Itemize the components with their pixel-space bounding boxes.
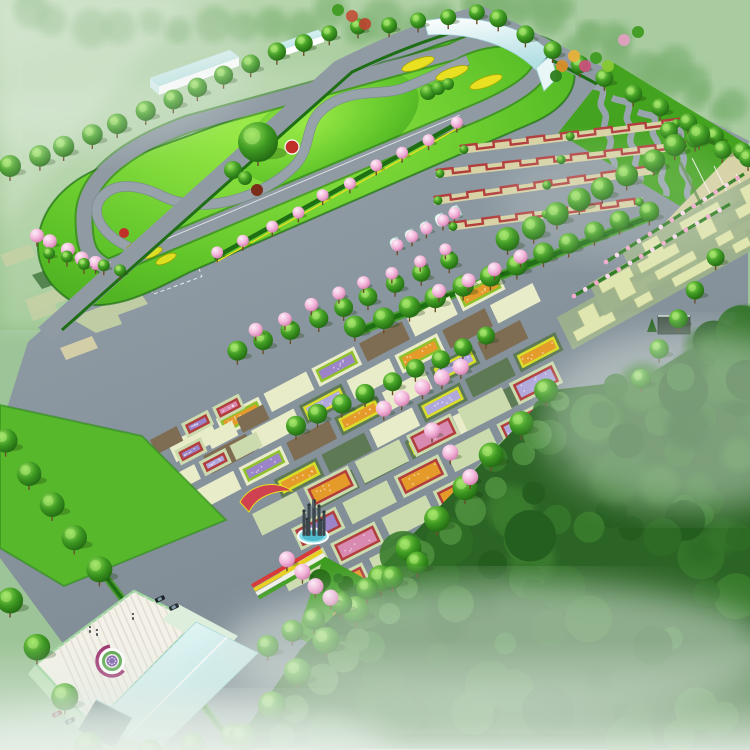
canopy-highlight — [270, 45, 278, 53]
site-plan-rendering — [0, 0, 750, 750]
forest-canopy-blob — [618, 516, 643, 541]
canopy-highlight — [337, 301, 345, 309]
tree-canopy — [406, 551, 428, 573]
canopy-highlight — [627, 87, 635, 95]
tree-canopy — [509, 411, 533, 435]
tree-canopy — [595, 69, 613, 87]
tree-canopy — [420, 222, 432, 234]
tree-canopy — [479, 442, 504, 467]
canopy-highlight — [409, 362, 417, 370]
sculpture-figure-head — [320, 519, 323, 522]
tree-canopy — [396, 147, 408, 159]
tree-canopy — [454, 338, 472, 356]
sculpture-figure — [306, 520, 309, 536]
tree-canopy — [399, 296, 421, 318]
tree-canopy — [266, 221, 278, 233]
ornamental-shrub — [602, 60, 614, 72]
canopy-highlight — [434, 353, 442, 361]
pedestrian — [96, 629, 98, 636]
canopy-highlight — [1, 591, 12, 602]
bottom-fog — [0, 640, 750, 750]
tree-canopy — [669, 309, 688, 328]
canopy-highlight — [20, 465, 30, 475]
zigzag-end-shrub — [435, 169, 444, 178]
sculpture-figure-head — [302, 509, 305, 512]
pedestrian — [89, 626, 91, 633]
canopy-highlight — [310, 407, 318, 415]
canopy-highlight — [116, 266, 121, 271]
ornamental-shrub — [359, 18, 371, 30]
canopy-highlight — [672, 312, 680, 320]
canopy-highlight — [709, 251, 717, 259]
infield-shrub — [238, 171, 252, 185]
tree-canopy — [355, 384, 374, 403]
tree-canopy — [30, 229, 44, 243]
tree-canopy — [713, 141, 731, 159]
tree-canopy — [78, 258, 90, 270]
tree-canopy — [307, 578, 323, 594]
tree-canopy — [17, 462, 42, 487]
canopy-highlight — [716, 143, 724, 151]
tree-canopy — [434, 369, 450, 385]
garden-shrub — [333, 573, 343, 583]
ornamental-shrub — [550, 70, 562, 82]
tree-canopy — [43, 234, 57, 248]
tree-canopy — [294, 564, 310, 580]
canopy-highlight — [688, 284, 696, 292]
forest-edge-crown — [455, 495, 486, 526]
tree-canopy — [317, 189, 329, 201]
tree-canopy — [61, 525, 87, 551]
light-forest-blob — [577, 22, 598, 43]
zigzag-end-shrub — [459, 145, 468, 154]
tree-canopy — [305, 298, 318, 311]
hedge-blossom — [572, 294, 577, 299]
tree-canopy — [544, 41, 562, 59]
tree-canopy — [451, 117, 463, 129]
tree-canopy — [381, 17, 397, 33]
tree-canopy — [308, 404, 328, 424]
tree-canopy — [334, 298, 353, 317]
light-forest-blob — [716, 89, 748, 121]
far-tree-blob — [255, 7, 287, 39]
tree-canopy — [477, 327, 495, 345]
canopy-highlight — [99, 261, 104, 266]
infield-shrub — [442, 78, 454, 90]
canopy-highlight — [499, 230, 509, 240]
canopy-highlight — [492, 12, 500, 20]
tree-canopy — [292, 207, 304, 219]
tree-canopy — [489, 9, 507, 27]
canopy-highlight — [399, 539, 410, 550]
light-forest-blob — [693, 81, 712, 100]
tree-canopy — [344, 178, 356, 190]
canopy-highlight — [244, 128, 261, 145]
tree-canopy — [707, 248, 725, 266]
sculpture-figure — [320, 521, 323, 536]
tree-canopy — [437, 214, 449, 226]
tree-canopy — [295, 34, 313, 52]
tree-canopy — [286, 416, 306, 436]
forest-canopy-blob — [643, 518, 681, 556]
canopy-highlight — [65, 528, 76, 539]
tree-canopy — [344, 315, 366, 337]
canopy-highlight — [383, 19, 390, 26]
tree-canopy — [624, 85, 642, 103]
ornamental-shrub — [579, 60, 591, 72]
forest-edge-crown — [512, 443, 535, 466]
canopy-highlight — [312, 311, 320, 319]
canopy-highlight — [80, 260, 85, 265]
canopy-highlight — [546, 44, 554, 52]
sculpture-figure-head — [322, 510, 325, 513]
canopy-highlight — [428, 510, 439, 521]
mist-patch — [500, 140, 740, 260]
canopy-highlight — [667, 137, 676, 146]
canopy-highlight — [358, 387, 366, 395]
sculpture-figure — [303, 512, 306, 536]
sculpture-figure — [323, 513, 326, 536]
tree-canopy — [332, 394, 352, 414]
canopy-highlight — [297, 36, 305, 44]
canopy-highlight — [482, 446, 492, 456]
pedestrian-legs — [132, 617, 134, 620]
canopy-highlight — [662, 124, 670, 132]
tree-canopy — [376, 401, 392, 417]
canopy-highlight — [289, 419, 297, 427]
canopy-highlight — [371, 569, 382, 580]
canopy-highlight — [384, 569, 393, 578]
ornamental-shrub — [590, 52, 602, 64]
tree-canopy — [453, 359, 469, 375]
tree-canopy — [448, 207, 460, 219]
tree-canopy — [249, 323, 263, 337]
red-leaf-shrub — [251, 184, 263, 196]
tree-canopy — [423, 134, 435, 146]
ornamental-shrub — [346, 10, 358, 22]
canopy-highlight — [335, 397, 343, 405]
canopy-highlight — [361, 290, 369, 298]
canopy-highlight — [513, 414, 523, 424]
tree-canopy — [442, 444, 458, 460]
tree-canopy — [410, 13, 426, 29]
canopy-highlight — [63, 252, 68, 257]
tree-canopy — [357, 276, 370, 289]
canopy-highlight — [402, 299, 411, 308]
forest-canopy-blob — [478, 550, 507, 579]
tree-canopy — [688, 124, 710, 146]
tree-canopy — [424, 506, 449, 531]
sculpture-spire — [312, 500, 314, 508]
tree-canopy — [114, 264, 126, 276]
pedestrian-body — [89, 628, 91, 630]
canopy-highlight — [456, 341, 464, 349]
canopy-highlight — [442, 11, 449, 18]
pedestrian — [132, 613, 134, 620]
tree-canopy — [406, 359, 425, 378]
sculpture-figure-head — [317, 504, 320, 507]
canopy-highlight — [682, 116, 690, 124]
ornamental-shrub — [332, 4, 344, 16]
canopy-highlight — [519, 28, 527, 36]
tree-canopy — [394, 390, 410, 406]
tree-canopy — [440, 9, 456, 25]
tree-canopy — [391, 239, 403, 251]
canopy-highlight — [412, 15, 419, 22]
tree-canopy — [496, 227, 520, 251]
canopy-highlight — [45, 249, 50, 254]
tree-canopy — [61, 251, 73, 263]
hedge-blossom — [605, 274, 610, 279]
canopy-highlight — [598, 71, 606, 79]
light-forest-blob — [531, 0, 566, 35]
pedestrian-head — [132, 613, 134, 615]
tree-canopy — [43, 247, 55, 259]
tree-canopy — [383, 372, 402, 391]
canopy-highlight — [736, 145, 744, 153]
canopy-highlight — [654, 101, 662, 109]
tree-canopy — [370, 159, 382, 171]
red-flower-bed — [285, 140, 299, 154]
tree-canopy — [516, 25, 534, 43]
hedge-blossom — [583, 287, 588, 292]
canopy-highlight — [409, 555, 418, 564]
tree-canopy — [386, 267, 399, 280]
canopy-highlight — [537, 382, 547, 392]
tree-canopy — [238, 122, 278, 162]
tree-canopy — [321, 25, 337, 41]
tree-canopy — [469, 4, 485, 20]
tree-canopy — [461, 273, 475, 287]
tree-canopy — [431, 350, 450, 369]
tree-canopy — [268, 42, 286, 60]
ornamental-shrub — [632, 26, 644, 38]
tree-canopy — [86, 556, 112, 582]
tree-canopy — [414, 255, 426, 267]
canopy-highlight — [347, 319, 356, 328]
canopy-highlight — [480, 329, 488, 337]
canopy-highlight — [742, 152, 750, 160]
tree-canopy — [439, 243, 451, 255]
tree-canopy — [98, 259, 110, 271]
tree-canopy — [211, 246, 223, 258]
ornamental-shrub — [556, 60, 568, 72]
tree-canopy — [373, 307, 395, 329]
tree-canopy — [279, 551, 295, 567]
hedge-blossom — [628, 261, 633, 266]
tree-canopy — [359, 287, 378, 306]
tree-canopy — [40, 492, 65, 517]
forest-canopy-blob — [522, 481, 545, 504]
sculpture-figure-head — [306, 518, 309, 521]
rendering-stage — [0, 0, 750, 750]
tree-canopy — [686, 281, 705, 300]
canopy-highlight — [471, 6, 478, 13]
zigzag-end-shrub — [433, 196, 442, 205]
canopy-highlight — [536, 245, 545, 254]
tree-canopy — [414, 379, 430, 395]
tree-canopy — [513, 250, 527, 264]
forest-edge-crown — [485, 477, 507, 499]
tree-canopy — [488, 262, 502, 276]
canopy-highlight — [230, 343, 238, 351]
forest-canopy-blob — [504, 510, 556, 562]
sculpture-figure-head — [307, 503, 310, 506]
pedestrian-legs — [96, 633, 98, 636]
zigzag-end-shrub — [566, 132, 575, 141]
forest-canopy-blob — [574, 512, 605, 543]
tree-canopy — [424, 422, 440, 438]
tree-canopy — [278, 312, 292, 326]
canopy-highlight — [90, 560, 101, 571]
pedestrian-head — [96, 629, 98, 631]
pedestrian-body — [96, 631, 98, 633]
tree-canopy — [462, 469, 478, 485]
tree-canopy — [332, 286, 345, 299]
canopy-highlight — [376, 310, 385, 319]
hedge-blossom — [616, 267, 621, 272]
tree-canopy — [237, 235, 249, 247]
pedestrian-body — [132, 615, 134, 617]
red-flower-patch — [119, 228, 129, 238]
tree-canopy — [406, 230, 418, 242]
pedestrian-legs — [89, 630, 91, 633]
canopy-highlight — [386, 375, 394, 383]
ornamental-shrub — [618, 34, 630, 46]
pedestrian-head — [89, 626, 91, 628]
canopy-highlight — [691, 127, 700, 136]
ornamental-shrub — [568, 50, 580, 62]
hedge-blossom — [594, 280, 599, 285]
hedge-blossom — [604, 260, 609, 265]
tree-canopy — [227, 341, 247, 361]
tree-canopy — [651, 98, 669, 116]
tree-canopy — [432, 284, 446, 298]
canopy-highlight — [43, 495, 54, 506]
hedge-blossom — [735, 176, 740, 181]
canopy-highlight — [324, 28, 331, 35]
